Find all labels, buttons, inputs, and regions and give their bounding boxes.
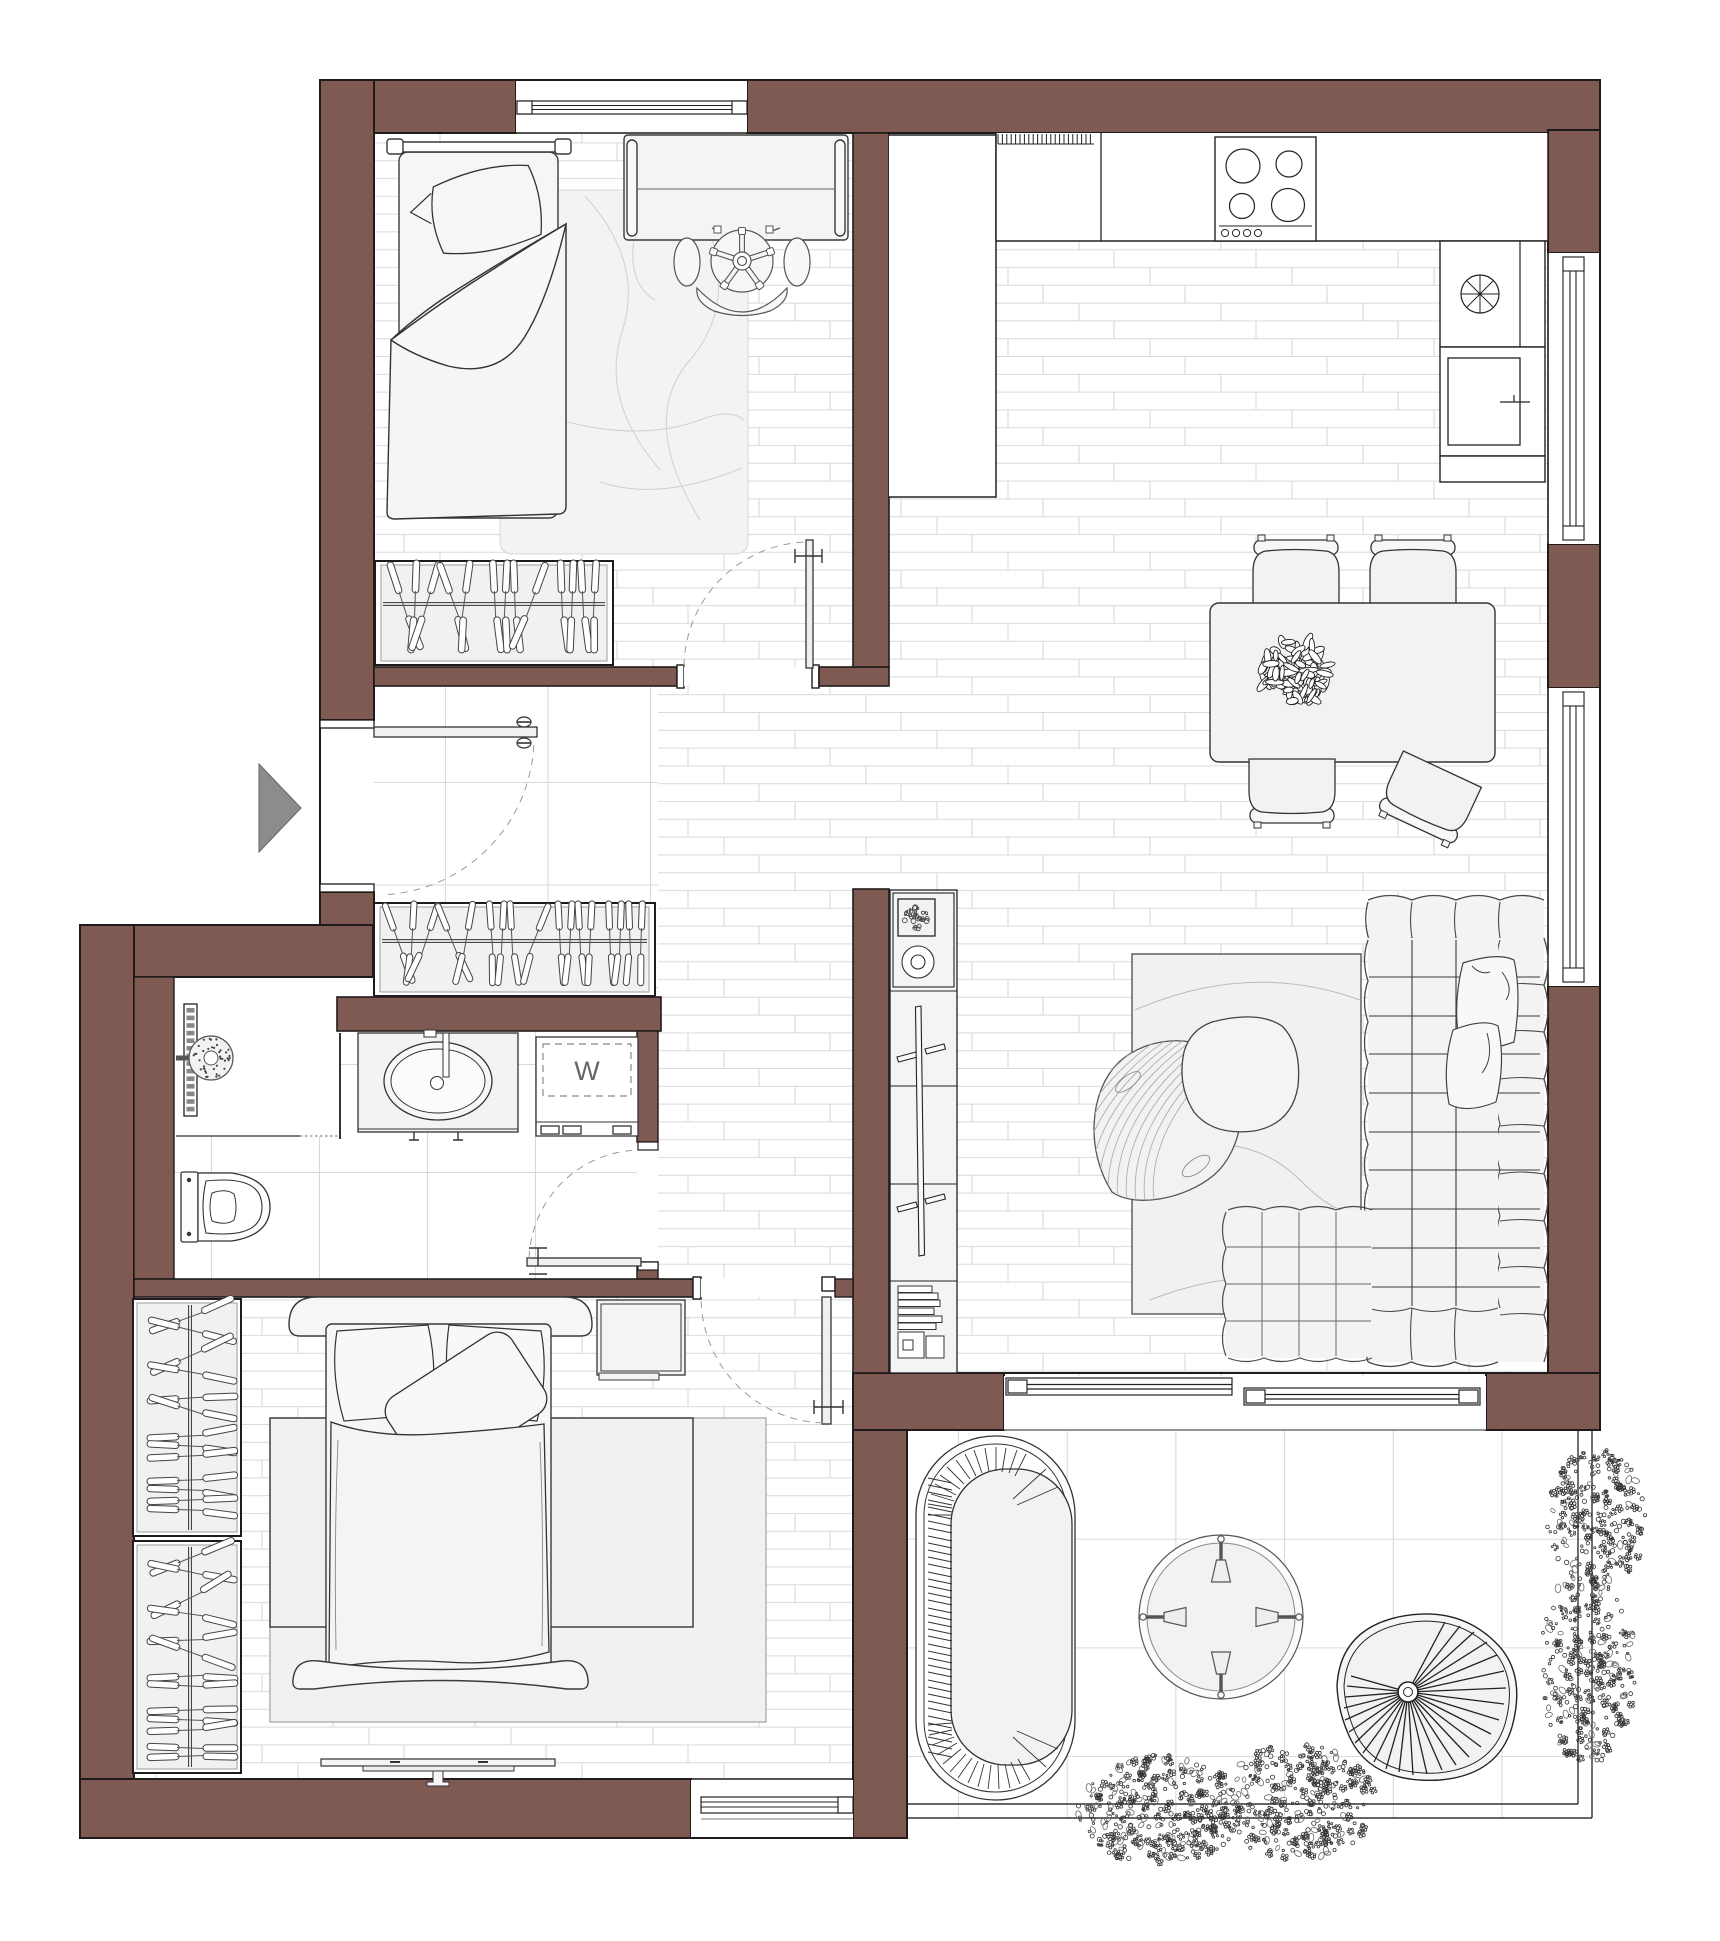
svg-text:W: W bbox=[574, 1056, 600, 1086]
